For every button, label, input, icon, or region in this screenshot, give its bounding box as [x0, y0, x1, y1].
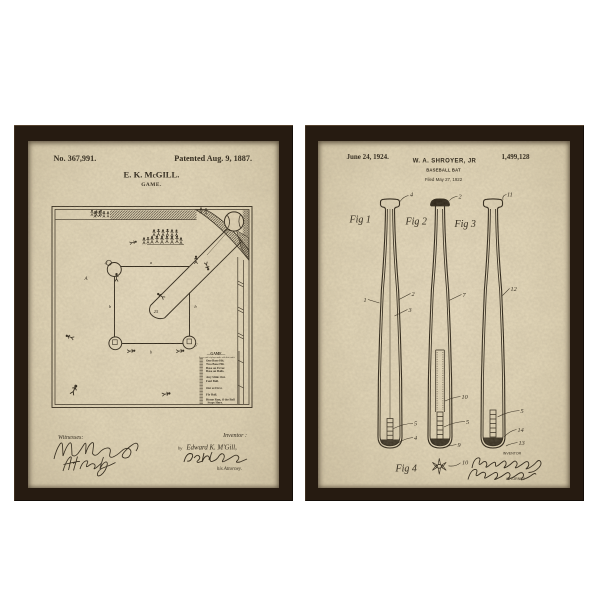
svg-text:4′: 4′: [105, 261, 108, 266]
svg-text:3: 3: [407, 307, 411, 314]
svg-text:June 24, 1924.: June 24, 1924.: [346, 153, 389, 161]
svg-text:Fig 4: Fig 4: [394, 464, 416, 475]
svg-text:7: 7: [462, 292, 466, 299]
svg-text:Fig 1: Fig 1: [348, 215, 370, 226]
svg-text:ATTORNEY: ATTORNEY: [505, 477, 525, 481]
svg-text:Base on Balls.: Base on Balls.: [206, 369, 225, 373]
svg-text:10: 10: [461, 394, 468, 401]
svg-text:Filed May 27, 1922: Filed May 27, 1922: [424, 177, 462, 182]
svg-text:9: 9: [457, 442, 460, 449]
svg-text:Fig 3: Fig 3: [453, 219, 475, 230]
svg-text:6′: 6′: [195, 343, 198, 348]
svg-text:W. A. SHROYER, JR: W. A. SHROYER, JR: [412, 159, 476, 165]
svg-text:Out at First.: Out at First.: [206, 386, 223, 390]
svg-text:Witnesses:: Witnesses:: [58, 435, 83, 441]
svg-text:Inventor :: Inventor :: [222, 433, 247, 439]
svg-text:his Attorney.: his Attorney.: [217, 467, 242, 472]
svg-text:BASEBALL BAT: BASEBALL BAT: [426, 168, 461, 173]
svg-text:5: 5: [466, 419, 469, 426]
svg-text:No. 367,991.: No. 367,991.: [54, 154, 97, 163]
svg-text:Foul Ball.: Foul Ball.: [206, 379, 219, 383]
svg-text:b: b: [109, 304, 112, 309]
svg-text:Patented Aug. 9, 1887.: Patented Aug. 9, 1887.: [174, 154, 252, 163]
svg-text:12: 12: [510, 286, 516, 293]
svg-text:5: 5: [414, 421, 417, 428]
svg-text:25: 25: [154, 309, 159, 314]
svg-text:INVENTOR: INVENTOR: [502, 452, 521, 456]
svg-text:2: 2: [458, 194, 461, 201]
svg-text:13: 13: [518, 440, 524, 447]
svg-text:Fly Ball.: Fly Ball.: [206, 392, 217, 396]
svg-text:5: 5: [520, 408, 523, 415]
svg-text:Edward K. M′Gill,: Edward K. M′Gill,: [186, 445, 238, 452]
svg-text:by: by: [178, 446, 183, 451]
svg-text:GAME.: GAME.: [141, 182, 162, 188]
svg-text:11: 11: [507, 192, 513, 199]
svg-text:b: b: [194, 304, 197, 309]
svg-text:2: 2: [411, 291, 414, 298]
svg-text:A: A: [83, 277, 88, 282]
svg-text:10: 10: [462, 460, 469, 467]
svg-text:Stops Here.: Stops Here.: [208, 400, 223, 404]
svg-text:E. K. McGILL.: E. K. McGILL.: [124, 170, 180, 180]
svg-text:1: 1: [363, 297, 366, 304]
svg-text:14: 14: [517, 427, 523, 434]
svg-text:Fig 2: Fig 2: [404, 217, 426, 228]
svg-text:b: b: [150, 350, 153, 355]
svg-text:1,499,128: 1,499,128: [501, 153, 530, 161]
svg-text:a: a: [150, 260, 153, 265]
svg-text:4: 4: [414, 435, 417, 442]
svg-text:—GAME—: —GAME—: [206, 352, 226, 356]
svg-text:4: 4: [410, 192, 413, 199]
